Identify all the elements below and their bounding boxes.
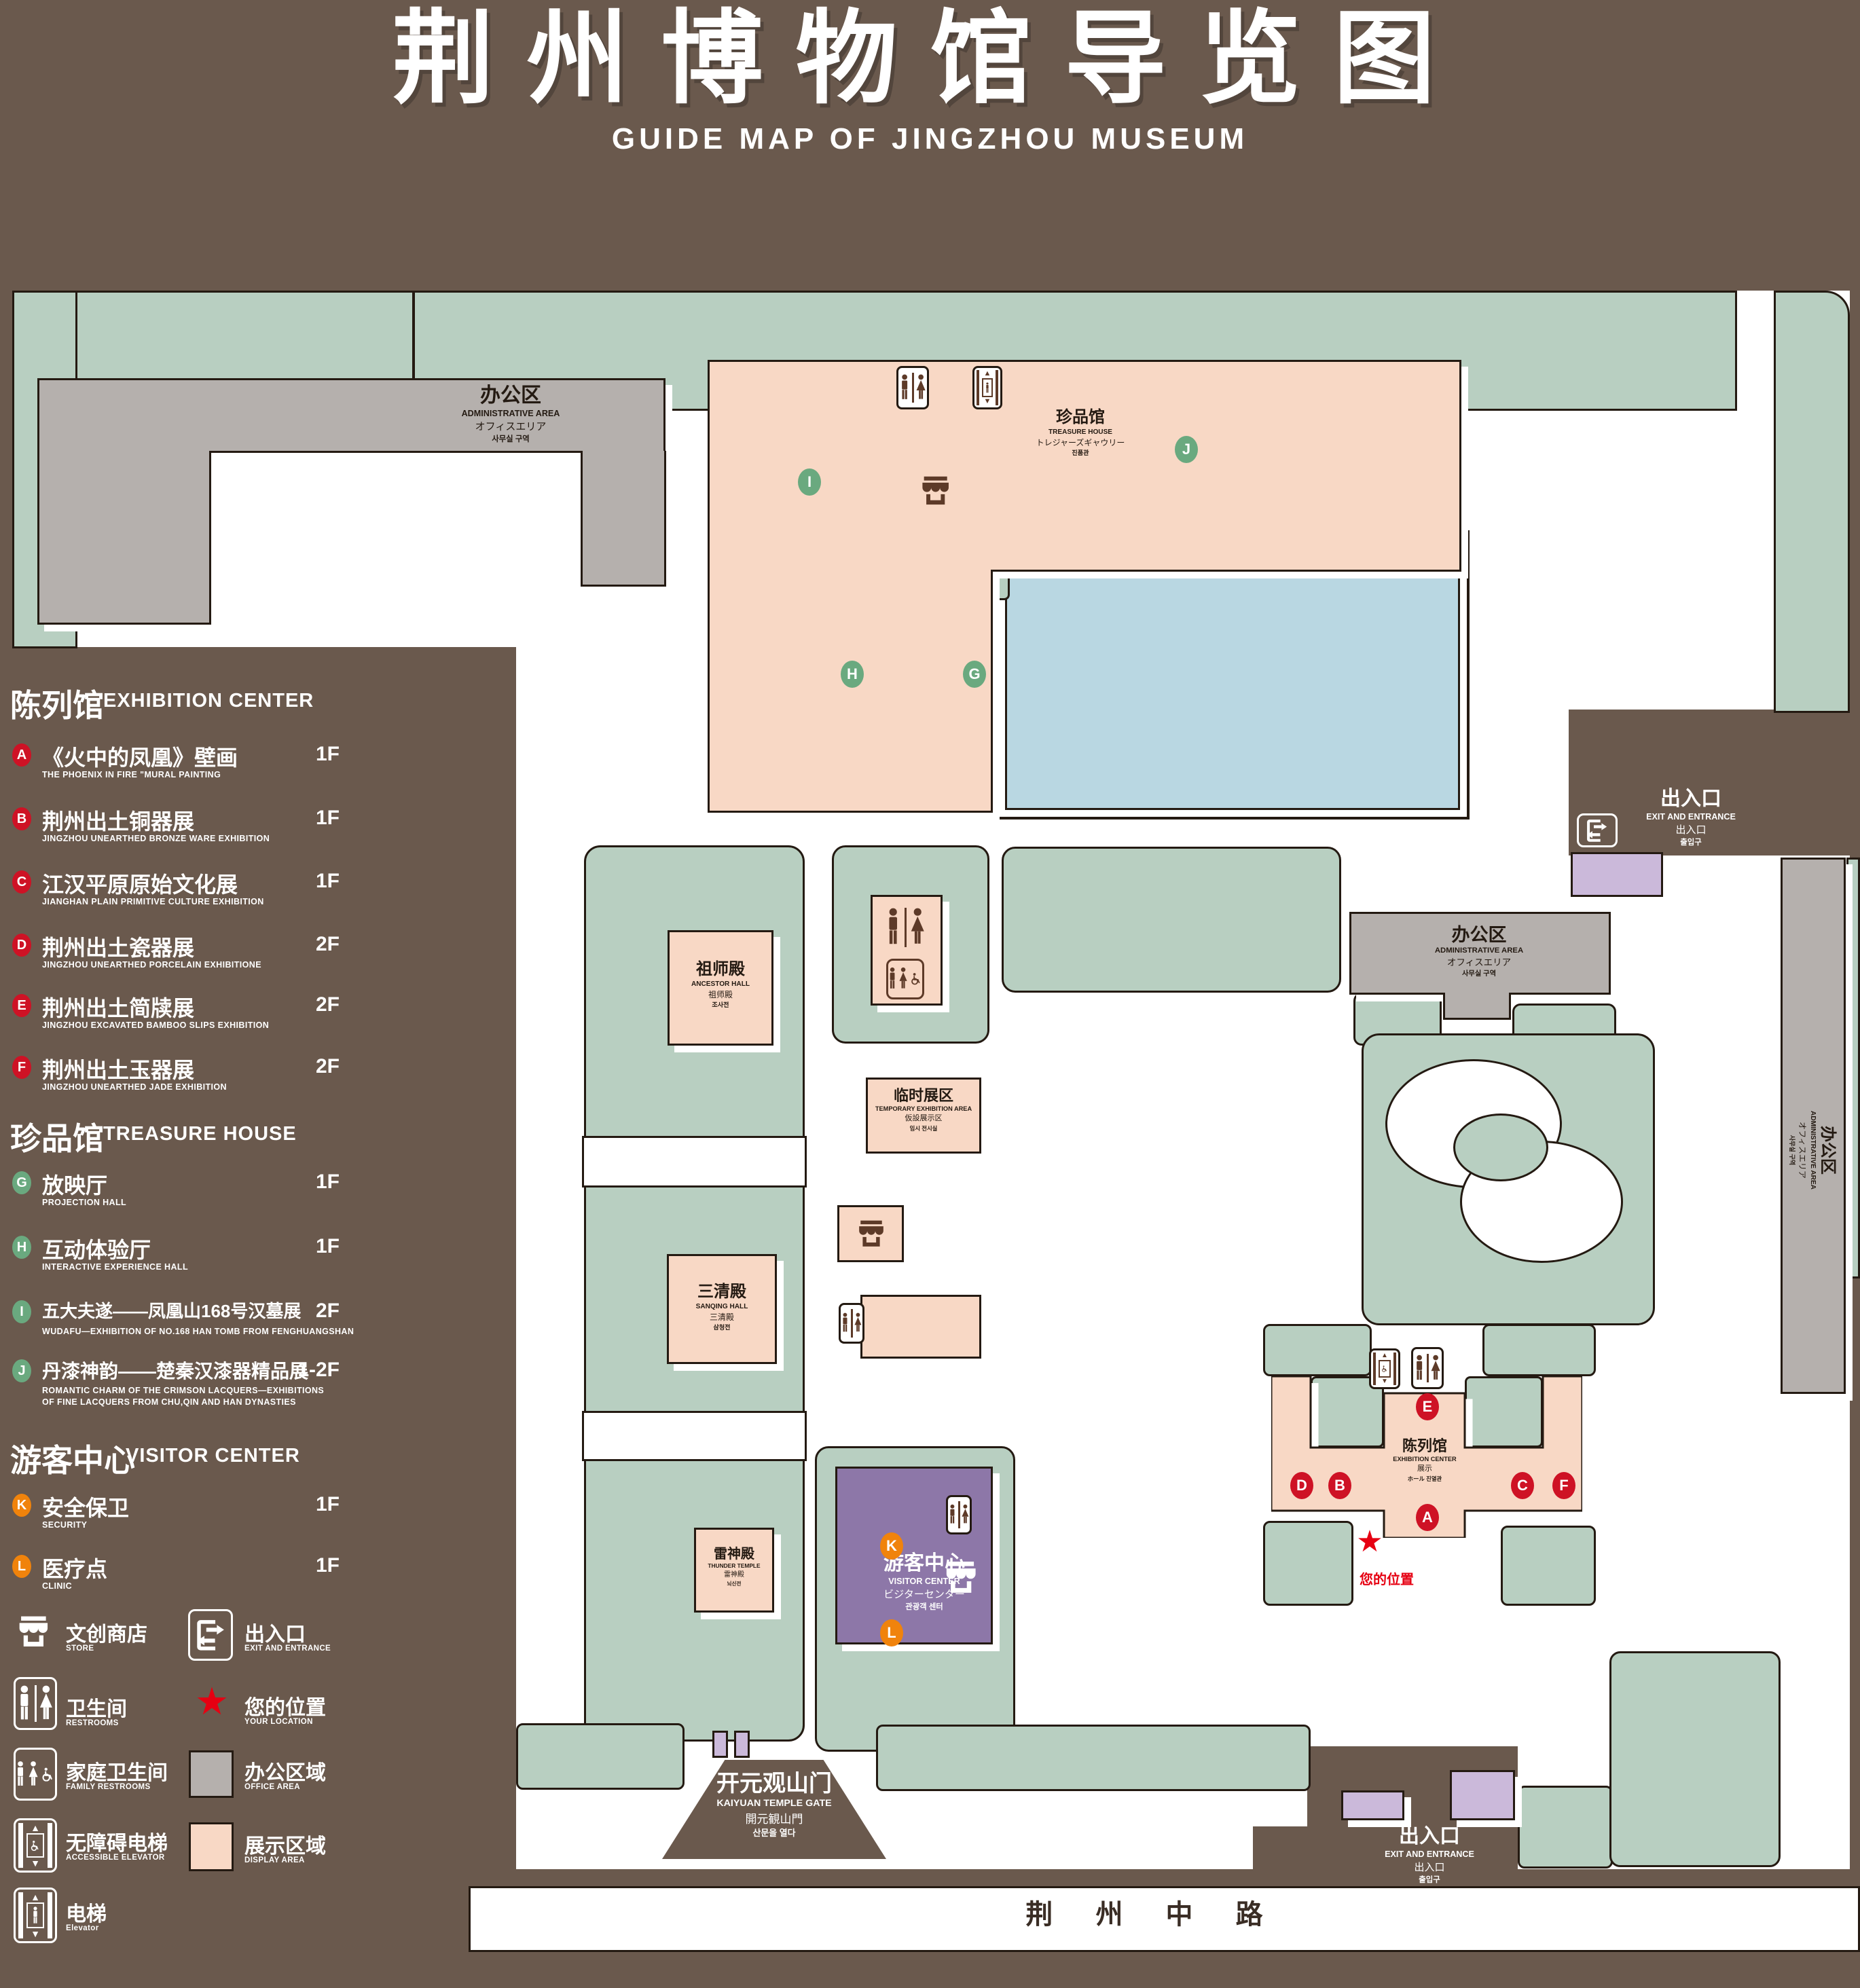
legend-icon-en-family: FAMILY RESTROOMS (66, 1783, 151, 1791)
path-halls-2 (582, 1411, 807, 1461)
label-sanqing-hall: 三清殿SANQING HALL三清殿삼청전 (518, 1283, 926, 1332)
label-exit-east-line-2: 出入口 (1487, 823, 1860, 837)
map-badge-L: L (880, 1619, 903, 1646)
store-icon-visitor (941, 1557, 981, 1598)
legend-icon-cn-swatch-office: 办公区域 (244, 1756, 326, 1786)
legend-section-header-1: 珍品馆TREASURE HOUSE (10, 1114, 104, 1159)
legend-section-header-0: 陈列馆EXHIBITION CENTER (10, 681, 104, 726)
legend-badge-L: L (12, 1555, 31, 1578)
lawn-exh-top-left (1263, 1324, 1372, 1376)
label-exit-south-line-2: 出入口 (1226, 1860, 1633, 1875)
legend-badge-B: B (12, 807, 31, 830)
store-icon-treasure (917, 473, 954, 509)
pond (1005, 540, 1460, 810)
bldg-gate-door-2 (734, 1731, 750, 1758)
label-treasure-house: 珍品馆TREASURE HOUSEトレジャーズギャウリー진품관 (877, 409, 1284, 458)
label-admin-west-line-2: オフィスエリア (307, 420, 714, 434)
legend-badge-C: C (12, 870, 31, 894)
page-title: 荆州博物馆导览图 GUIDE MAP OF JINGZHOU MUSEUM (0, 5, 1860, 156)
restroom-icon-legend (14, 1677, 57, 1730)
label-exhibition-center-line-0: 陈列馆 (1221, 1438, 1628, 1455)
bldg-admin-west-right (581, 451, 666, 587)
legend-section-en: EXHIBITION CENTER (103, 690, 314, 712)
map-badge-E: E (1416, 1393, 1439, 1420)
swatch-office-icon-legend (189, 1750, 234, 1798)
label-ancestor-hall-line-3: 조사전 (517, 1001, 924, 1010)
legend-icon-en-swatch-office: OFFICE AREA (244, 1783, 300, 1791)
label-exit-east-line-1: EXIT AND ENTRANCE (1487, 811, 1860, 824)
label-sanqing-hall-line-0: 三清殿 (518, 1283, 926, 1302)
label-your-location-line-0: 您的位置 (1183, 1572, 1590, 1587)
label-treasure-house-line-1: TREASURE HOUSE (877, 427, 1284, 437)
legend-item-cn-F: 荆州出土玉器展 (42, 1053, 194, 1084)
legend-section-cn: 游客中心 (10, 1443, 135, 1478)
museum-guide-map: 荆州博物馆导览图 GUIDE MAP OF JINGZHOU MUSEUM 办公… (0, 0, 1860, 1988)
label-admin-east-line-3: 사무실 구역 (1275, 970, 1683, 980)
exit-icon-legend (188, 1609, 233, 1661)
map-badge-C: C (1511, 1472, 1534, 1499)
legend-item-floor-H: 1F (292, 1235, 340, 1258)
legend-item-cn-G: 放映厅 (42, 1168, 107, 1200)
label-kaiyuan-gate-line-1: KAIYUAN TEMPLE GATE (570, 1797, 978, 1811)
legend-icon-cn-store: 文创商店 (66, 1617, 147, 1647)
label-exit-south-line-1: EXIT AND ENTRANCE (1226, 1848, 1633, 1861)
label-treasure-house-line-0: 珍品馆 (877, 409, 1284, 427)
label-sanqing-hall-line-2: 三清殿 (518, 1312, 926, 1323)
label-exit-south-line-0: 出入口 (1226, 1825, 1633, 1848)
restroom-icon-exhibition (1411, 1347, 1444, 1389)
label-treasure-house-line-3: 진품관 (877, 449, 1284, 458)
label-temporary-exhibition-line-0: 临时展区 (720, 1088, 1127, 1105)
label-ancestor-hall: 祖师殿ANCESTOR HALL祖师殿조사전 (517, 961, 924, 1010)
label-kaiyuan-gate-line-3: 산문을 열다 (570, 1827, 978, 1840)
legend-item-cn-C: 江汉平原原始文化展 (42, 868, 238, 899)
label-ancestor-hall-line-0: 祖师殿 (517, 961, 924, 979)
label-visitor-center-line-2: ビジターセンター (721, 1587, 1128, 1602)
label-admin-west-line-0: 办公区 (307, 384, 714, 407)
legend-item-floor-E: 2F (292, 993, 340, 1016)
label-road: 荆 州 中 路 (949, 1900, 1357, 1930)
legend-item-floor-D: 2F (292, 933, 340, 956)
legend-item-floor-L: 1F (292, 1554, 340, 1577)
legend-badge-H: H (12, 1236, 31, 1259)
label-admin-east-line-1: ADMINISTRATIVE AREA (1275, 945, 1683, 957)
path-halls-1 (582, 1136, 807, 1188)
label-temporary-exhibition: 临时展区TEMPORARY EXHIBITION AREA仮設展示区임시 전시실 (720, 1088, 1127, 1133)
legend-icon-cn-accelev: 无障碍电梯 (66, 1826, 168, 1856)
legend-icon-cn-elevator: 电梯 (66, 1897, 107, 1927)
bldg-treasure-main (708, 360, 1461, 572)
label-star-line-0: ★ (1166, 1525, 1573, 1558)
legend-section-cn: 陈列馆 (10, 688, 104, 723)
lawn-right-sliver (1846, 858, 1860, 1278)
lawn-right-top (1774, 291, 1850, 713)
title-chinese: 荆州博物馆导览图 (0, 5, 1860, 113)
label-admin-tower: 办公区ADMINISTRATIVE AREAオフィスエリア사무실 구역 (1787, 1008, 1836, 1293)
legend-item-floor-G: 1F (292, 1171, 340, 1194)
label-exhibition-center-line-1: EXHIBITION CENTER (1221, 1455, 1628, 1465)
legend-item-en-H: INTERACTIVE EXPERIENCE HALL (42, 1262, 188, 1273)
label-admin-tower-line-1: ADMINISTRATIVE AREA (1808, 1008, 1818, 1293)
label-kaiyuan-gate-line-2: 開元観山門 (570, 1811, 978, 1828)
legend-badge-E: E (12, 994, 31, 1017)
legend-icon-cn-family: 家庭卫生间 (66, 1756, 168, 1786)
map-badge-K: K (880, 1532, 903, 1560)
label-ancestor-hall-line-2: 祖师殿 (517, 989, 924, 1001)
map-badge-A: A (1416, 1504, 1439, 1531)
legend-item-cn-J: 丹漆神韵——楚秦汉漆器精品展 (42, 1357, 308, 1384)
restroom-icon-treasure (896, 366, 929, 409)
restroom-icon-mid (839, 1303, 864, 1344)
bldg-admin-west-left (37, 451, 211, 625)
legend-item-en-D: JINGZHOU UNEARTHED PORCELAIN EXHIBITIONE (42, 959, 261, 971)
legend-badge-K: K (12, 1494, 31, 1517)
label-kaiyuan-gate-line-0: 开元观山门 (570, 1771, 978, 1797)
store-icon-legend (14, 1610, 53, 1653)
legend-icon-en-accelev: ACCESSIBLE ELEVATOR (66, 1854, 165, 1862)
label-visitor-center: 游客中心VISITOR CENTERビジターセンター관광객 센터 (721, 1552, 1128, 1613)
map-badge-D: D (1290, 1472, 1313, 1499)
garden-island (1453, 1113, 1548, 1181)
map-badge-F: F (1552, 1472, 1575, 1499)
legend-item-cn-B: 荆州出土铜器展 (42, 805, 194, 836)
legend-item-floor-I: 2F (292, 1300, 340, 1323)
label-ancestor-hall-line-1: ANCESTOR HALL (517, 979, 924, 989)
label-exit-east-line-3: 출입구 (1487, 837, 1860, 849)
legend-icon-en-elevator: Elevator (66, 1924, 99, 1932)
label-your-location: 您的位置 (1183, 1572, 1590, 1587)
store-icon-central (854, 1217, 888, 1251)
legend-item-floor-F: 2F (292, 1055, 340, 1078)
label-admin-west-line-1: ADMINISTRATIVE AREA (307, 407, 714, 420)
legend-item-en-I: WUDAFU—EXHIBITION OF NO.168 HAN TOMB FRO… (42, 1326, 354, 1338)
label-visitor-center-line-0: 游客中心 (721, 1552, 1128, 1575)
label-admin-east-line-2: オフィスエリア (1275, 957, 1683, 970)
label-sanqing-hall-line-3: 삼청전 (518, 1323, 926, 1332)
legend-icon-cn-star: 您的位置 (244, 1691, 326, 1720)
restroom-icon-visitor (946, 1495, 972, 1534)
legend-badge-J: J (12, 1359, 31, 1382)
bldg-gate-door-1 (712, 1731, 728, 1758)
legend-icon-cn-exit: 出入口 (244, 1617, 306, 1647)
legend-item-floor-B: 1F (292, 807, 340, 830)
label-kaiyuan-gate: 开元观山门KAIYUAN TEMPLE GATE開元観山門산문을 열다 (570, 1771, 978, 1840)
bldg-purple-east (1571, 852, 1663, 897)
legend-item-floor-J: 1-2F (292, 1359, 340, 1382)
swatch-display-icon-legend (189, 1822, 234, 1871)
title-english: GUIDE MAP OF JINGZHOU MUSEUM (0, 122, 1860, 156)
accessible-elevator-icon-exhibition: ▲ ▼ (1369, 1348, 1400, 1389)
legend-section-en: TREASURE HOUSE (103, 1123, 297, 1145)
bldg-purple-south-2 (1450, 1770, 1515, 1820)
label-exit-south-line-3: 출입구 (1226, 1875, 1633, 1886)
legend-icon-en-exit: EXIT AND ENTRANCE (244, 1644, 331, 1653)
legend-item-en-B: JINGZHOU UNEARTHED BRONZE WARE EXHIBITIO… (42, 833, 270, 845)
family-restroom-icon-central (886, 959, 924, 999)
accelev-icon-legend: ▲ ▼ (14, 1818, 57, 1873)
legend-item-en-L: CLINIC (42, 1581, 72, 1592)
label-exit-east-line-0: 出入口 (1487, 788, 1860, 811)
label-road-line-0: 荆 州 中 路 (949, 1900, 1357, 1930)
family-icon-legend (14, 1748, 57, 1801)
label-admin-east-line-0: 办公区 (1275, 925, 1683, 945)
label-admin-tower-line-0: 办公区 (1818, 1008, 1836, 1293)
map-badge-I: I (798, 468, 821, 496)
bldg-purple-south-1 (1341, 1790, 1404, 1820)
restroom-icon-central (883, 902, 928, 953)
legend-item-en-K: SECURITY (42, 1520, 87, 1531)
legend-item-en-F: JINGZHOU UNEARTHED JADE EXHIBITION (42, 1082, 227, 1093)
map-badge-B: B (1328, 1472, 1351, 1499)
map-badge-J: J (1175, 436, 1198, 463)
legend-icon-en-restroom: RESTROOMS (66, 1719, 119, 1727)
legend-item-cn-L: 医疗点 (42, 1552, 107, 1583)
label-exit-east: 出入口EXIT AND ENTRANCE出入口출입구 (1487, 788, 1860, 849)
legend-badge-D: D (12, 934, 31, 957)
label-sanqing-hall-line-1: SANQING HALL (518, 1302, 926, 1312)
legend-item-cn-E: 荆州出土简牍展 (42, 991, 194, 1023)
label-treasure-house-line-2: トレジャーズギャウリー (877, 437, 1284, 449)
map-badge-G: G (963, 661, 986, 688)
map-badge-H: H (841, 661, 864, 688)
legend-icon-cn-swatch-display: 展示区域 (244, 1829, 326, 1859)
legend-section-cn: 珍品馆 (10, 1121, 104, 1156)
elevator-icon-legend: ▲ ▼ (14, 1888, 57, 1943)
legend-item-en-A: THE PHOENIX IN FIRE "MURAL PAINTING (42, 769, 221, 781)
label-temporary-exhibition-line-2: 仮設展示区 (720, 1113, 1127, 1124)
legend-icon-en-swatch-display: DISPLAY AREA (244, 1856, 305, 1864)
label-visitor-center-line-3: 관광객 센터 (721, 1602, 1128, 1613)
legend-icon-en-star: YOUR LOCATION (244, 1718, 313, 1726)
lawn-exh-top-right (1482, 1324, 1596, 1376)
label-admin-tower-line-3: 사무실 구역 (1787, 1008, 1796, 1293)
label-star: ★ (1166, 1525, 1573, 1558)
legend-item-en-J: ROMANTIC CHARM OF THE CRIMSON LACQUERS—E… (42, 1385, 324, 1408)
legend-badge-A: A (12, 743, 31, 767)
label-admin-east: 办公区ADMINISTRATIVE AREAオフィスエリア사무실 구역 (1275, 925, 1683, 980)
label-admin-west-line-3: 사무실 구역 (307, 434, 714, 445)
guide-map-page: { "title": {"cn": "荆州博物馆导览图", "en": "GUI… (0, 0, 1860, 1988)
label-temporary-exhibition-line-3: 임시 전시실 (720, 1124, 1127, 1133)
legend-item-floor-A: 1F (292, 743, 340, 766)
elevator-icon-treasure: ▲ ▼ (972, 366, 1002, 409)
legend-item-cn-A: 《火中的凤凰》壁画 (42, 741, 238, 772)
legend-item-cn-K: 安全保卫 (42, 1491, 129, 1522)
legend-item-en-E: JINGZHOU EXCAVATED BAMBOO SLIPS EXHIBITI… (42, 1020, 269, 1031)
legend-section-header-2: 游客中心VISITOR CENTER (10, 1436, 135, 1481)
label-admin-west: 办公区ADMINISTRATIVE AREAオフィスエリア사무실 구역 (307, 384, 714, 445)
legend-item-floor-K: 1F (292, 1493, 340, 1516)
exit-icon-east (1577, 813, 1618, 847)
legend-icon-cn-restroom: 卫生间 (66, 1692, 127, 1722)
legend-section-en: VISITOR CENTER (126, 1445, 300, 1467)
lawn-bottom-right-large (1609, 1651, 1781, 1867)
legend-item-en-G: PROJECTION HALL (42, 1197, 126, 1209)
legend-item-cn-I: 五大夫遂——凤凰山168号汉墓展 (42, 1297, 301, 1323)
legend-badge-F: F (12, 1056, 31, 1079)
legend-item-en-C: JIANGHAN PLAIN PRIMITIVE CULTURE EXHIBIT… (42, 896, 264, 908)
legend-item-cn-D: 荆州出土瓷器展 (42, 931, 194, 962)
bldg-treasure-wing (708, 570, 993, 813)
star-icon-legend: ★ (193, 1682, 231, 1720)
legend-badge-G: G (12, 1171, 31, 1194)
label-exit-south: 出入口EXIT AND ENTRANCE出入口출입구 (1226, 1825, 1633, 1886)
legend-item-floor-C: 1F (292, 870, 340, 893)
legend-icon-en-store: STORE (66, 1644, 94, 1653)
legend-item-cn-H: 互动体验厅 (42, 1233, 151, 1264)
bldg-admin-east-foot (1443, 993, 1511, 1020)
label-admin-tower-line-2: オフィスエリア (1796, 1008, 1808, 1293)
label-visitor-center-line-1: VISITOR CENTER (721, 1575, 1128, 1588)
label-temporary-exhibition-line-1: TEMPORARY EXHIBITION AREA (720, 1105, 1127, 1114)
legend-badge-I: I (12, 1300, 31, 1323)
